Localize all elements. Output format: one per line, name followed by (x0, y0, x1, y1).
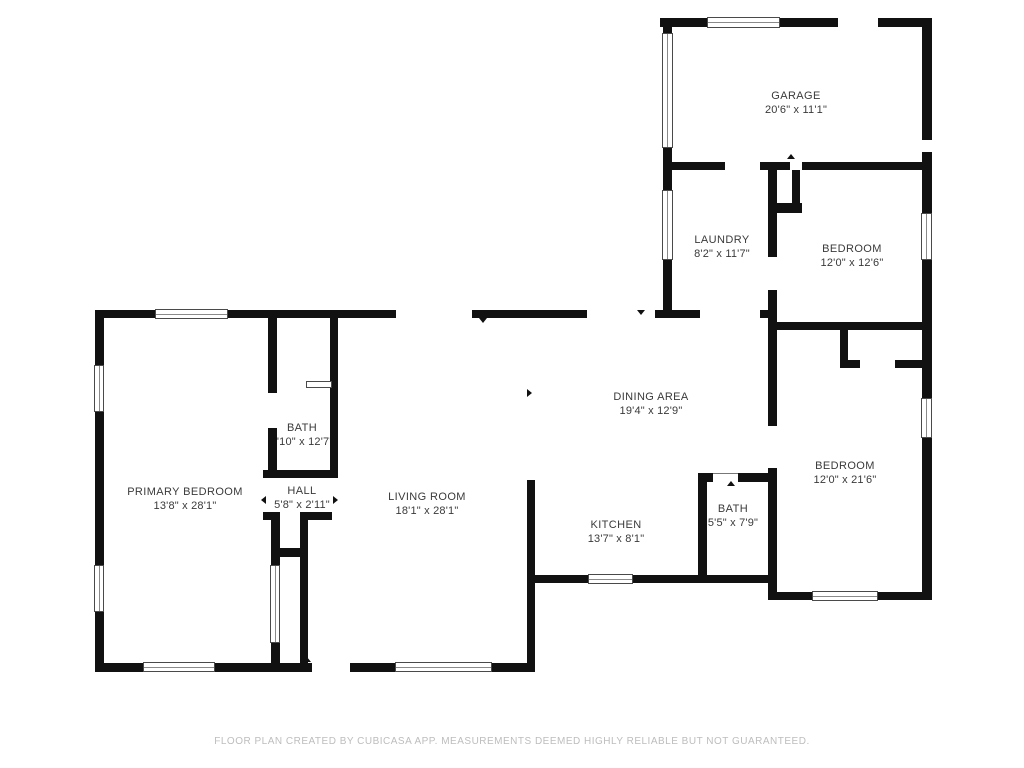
room-label-garage: GARAGE 20'6" x 11'1" (765, 89, 827, 117)
room-name: KITCHEN (588, 518, 645, 532)
room-dimensions: 12'0" x 12'6" (821, 256, 884, 270)
room-dimensions: 19'4" x 12'9" (613, 404, 688, 418)
door-tick (727, 481, 735, 486)
room-label-primary-bedroom: PRIMARY BEDROOM 13'8" x 28'1" (127, 485, 243, 513)
room-dimensions: 5'8" x 2'11" (274, 498, 330, 512)
wall (922, 18, 932, 600)
wall (472, 310, 587, 318)
room-name: LAUNDRY (694, 233, 750, 247)
window (921, 398, 932, 438)
room-label-dining-area: DINING AREA 19'4" x 12'9" (613, 390, 688, 418)
room-dimensions: 20'6" x 11'1" (765, 103, 827, 117)
window (94, 565, 104, 612)
wall (263, 470, 338, 478)
room-label-bedroom-1: BEDROOM 12'0" x 12'6" (821, 242, 884, 270)
wall (300, 512, 332, 520)
room-dimensions: 13'8" x 28'1" (127, 499, 243, 513)
wall (698, 482, 707, 575)
room-dimensions: 13'7" x 8'1" (588, 532, 645, 546)
room-name: PRIMARY BEDROOM (127, 485, 243, 499)
room-label-kitchen: KITCHEN 13'7" x 8'1" (588, 518, 645, 546)
room-dimensions: 8'2" x 11'7" (694, 247, 750, 261)
wall (95, 310, 396, 318)
door-opening (790, 162, 802, 170)
room-name: GARAGE (765, 89, 827, 103)
floor-plan: GARAGE 20'6" x 11'1" LAUNDRY 8'2" x 11'7… (0, 0, 1024, 768)
room-dimensions: 12'0" x 21'6" (814, 473, 877, 487)
door-tick (479, 318, 487, 323)
window (588, 574, 633, 584)
wall (895, 360, 922, 368)
room-name: BEDROOM (821, 242, 884, 256)
wall (660, 18, 932, 27)
window (662, 33, 673, 148)
room-name: BATH (708, 502, 758, 516)
wall (271, 548, 300, 557)
room-label-bath-2: BATH 5'5" x 7'9" (708, 502, 758, 530)
door-tick (333, 496, 338, 504)
wall (527, 575, 777, 583)
window (270, 565, 280, 643)
room-name: DINING AREA (613, 390, 688, 404)
wall (655, 310, 700, 318)
window (921, 213, 932, 260)
room-name: LIVING ROOM (388, 490, 466, 504)
wall (792, 170, 800, 205)
window (94, 365, 104, 412)
room-label-laundry: LAUNDRY 8'2" x 11'7" (694, 233, 750, 261)
door-opening (768, 426, 777, 468)
door-tick (787, 154, 795, 159)
wall (768, 203, 802, 213)
door-opening (838, 18, 878, 27)
wall (840, 360, 860, 368)
door-opening (312, 663, 350, 672)
window (395, 662, 492, 672)
shelf (306, 381, 332, 388)
wall (768, 322, 932, 330)
room-name: BEDROOM (814, 459, 877, 473)
window (812, 591, 878, 601)
window (707, 17, 780, 28)
room-label-living-room: LIVING ROOM 18'1" x 28'1" (388, 490, 466, 518)
room-label-bath-1: BATH 4'10" x 12'7" (271, 421, 334, 449)
wall (663, 162, 725, 170)
room-label-hall: HALL 5'8" x 2'11" (274, 484, 330, 512)
room-label-bedroom-2: BEDROOM 12'0" x 21'6" (814, 459, 877, 487)
room-name: BATH (271, 421, 334, 435)
window (143, 662, 215, 672)
wall (760, 310, 768, 318)
room-name: HALL (274, 484, 330, 498)
door-tick (261, 496, 266, 504)
wall (330, 318, 338, 470)
room-dimensions: 5'5" x 7'9" (708, 516, 758, 530)
door-tick (637, 310, 645, 315)
window (662, 190, 673, 260)
wall (768, 170, 777, 600)
door-opening (268, 393, 277, 428)
door-tick (527, 389, 532, 397)
wall (300, 520, 308, 672)
disclaimer-text: FLOOR PLAN CREATED BY CUBICASA APP. MEAS… (214, 736, 809, 747)
door-opening (922, 140, 932, 152)
room-dimensions: 4'10" x 12'7" (271, 435, 334, 449)
window (155, 309, 228, 319)
room-dimensions: 18'1" x 28'1" (388, 504, 466, 518)
door-opening (768, 257, 777, 290)
wall (760, 162, 932, 170)
door-tick (303, 657, 311, 662)
